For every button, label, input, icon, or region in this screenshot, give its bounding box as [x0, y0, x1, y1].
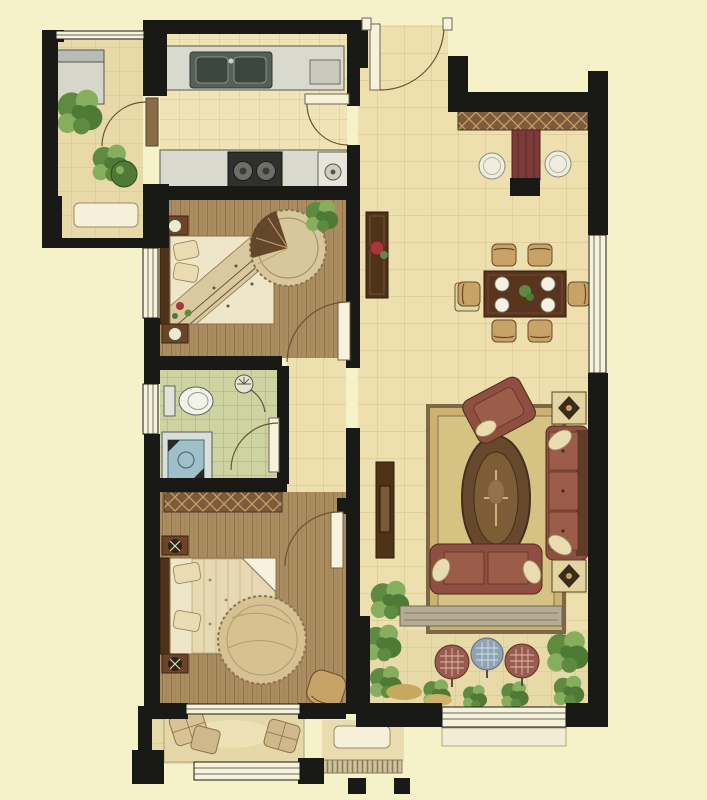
shrub-icon: [501, 681, 528, 708]
dining-chair: [528, 244, 552, 266]
counter-appliance: [310, 60, 340, 84]
outdoor-sill: [442, 728, 566, 746]
balcony-step: [400, 606, 562, 626]
floor-plan: [0, 0, 707, 800]
pillow-icon: [173, 562, 202, 584]
pillow-icon: [173, 610, 202, 632]
double-sink: [190, 52, 272, 88]
shrub-icon: [547, 631, 589, 673]
plate-icon: [541, 298, 555, 312]
bed-flower-decor: [172, 313, 178, 319]
shrub-icon: [463, 685, 487, 709]
dining-chair: [492, 320, 516, 342]
sliding-door: [186, 704, 300, 714]
dining-chair: [458, 282, 480, 306]
table-lamp-icon: [566, 405, 572, 411]
bed-flower-decor: [176, 302, 184, 310]
potted-plant-icon: [111, 161, 137, 187]
three-seat-sofa: [545, 426, 588, 560]
shoe-cabinet: [458, 110, 588, 130]
headboard: [160, 558, 170, 654]
window: [143, 248, 158, 318]
rug: [428, 406, 564, 632]
tv-icon: [380, 486, 390, 532]
dining-chair: [568, 282, 590, 306]
window: [143, 384, 158, 434]
plate-icon: [495, 298, 509, 312]
plant-icon: [306, 200, 338, 232]
decor-ball-blue: [471, 638, 503, 670]
table-lamp-icon: [566, 573, 572, 579]
lamp-icon: [169, 220, 182, 233]
decor-ball-red: [435, 645, 469, 679]
window: [194, 762, 300, 780]
round-rug: [218, 596, 306, 684]
bed-flower-decor: [185, 310, 192, 317]
plant-highlight: [116, 166, 124, 174]
plate-icon: [541, 277, 555, 291]
decor-ball-red: [505, 644, 539, 678]
balcony-railing: [56, 31, 144, 39]
toilet-icon: [164, 386, 213, 416]
pillow-icon: [173, 262, 200, 283]
window: [442, 707, 566, 727]
flower-leaf-icon: [380, 251, 388, 259]
loveseat: [429, 544, 545, 594]
centerpiece-icon: [526, 293, 534, 301]
outdoor-planter: [334, 726, 390, 748]
door-leaf: [146, 98, 158, 146]
window: [589, 235, 606, 373]
headboard: [160, 236, 170, 324]
hallway-floor: [287, 358, 346, 505]
dry-grass: [386, 684, 422, 700]
shrub-icon: [365, 625, 402, 662]
dining-chair: [528, 320, 552, 342]
lamp-icon: [169, 328, 182, 341]
dining-chair: [492, 244, 516, 266]
railing: [322, 760, 402, 773]
plant-icon: [58, 90, 103, 135]
round-stool: [479, 153, 505, 179]
shrub-icon: [554, 676, 584, 706]
planter-sill: [74, 203, 138, 227]
plate-icon: [495, 277, 509, 291]
round-stool: [545, 151, 571, 177]
wardrobe: [164, 492, 282, 512]
floor-plan-drawing: [0, 0, 707, 800]
washing-machine-panel: [56, 50, 104, 62]
entry-pillar: [510, 178, 540, 196]
